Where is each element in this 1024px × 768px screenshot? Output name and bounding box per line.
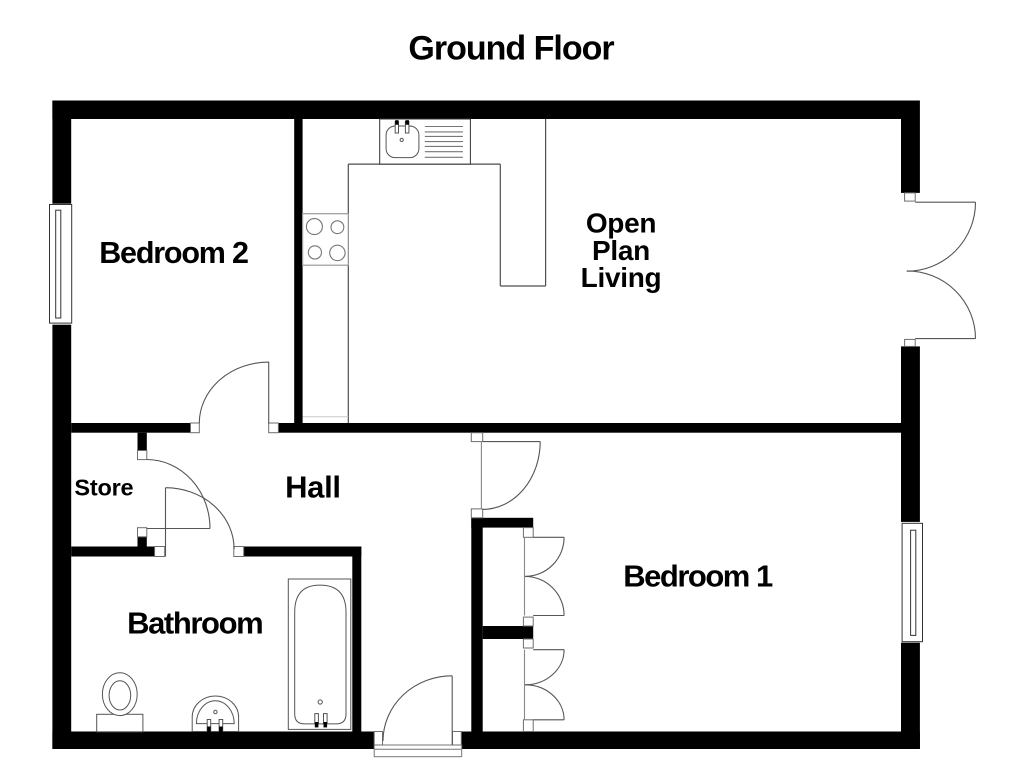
svg-text:Bedroom 1: Bedroom 1 bbox=[623, 559, 773, 594]
svg-text:Living: Living bbox=[581, 262, 662, 293]
svg-text:Store: Store bbox=[74, 475, 133, 501]
svg-text:Hall: Hall bbox=[285, 470, 341, 505]
svg-text:Bedroom 2: Bedroom 2 bbox=[99, 236, 248, 270]
svg-text:Ground Floor: Ground Floor bbox=[408, 30, 614, 68]
svg-text:Bathroom: Bathroom bbox=[127, 606, 262, 641]
